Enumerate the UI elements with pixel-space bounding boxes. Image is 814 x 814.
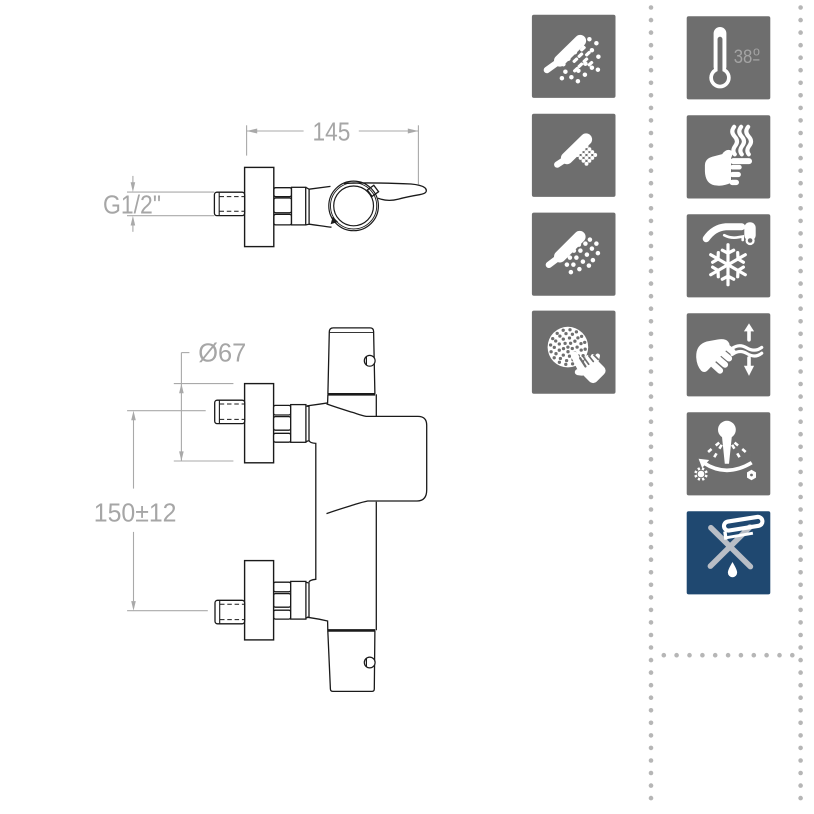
- svg-text:150±12: 150±12: [94, 499, 177, 527]
- svg-text:o: o: [753, 45, 760, 59]
- svg-text:145: 145: [313, 119, 351, 147]
- svg-text:Ø67: Ø67: [198, 340, 246, 368]
- svg-text:G1/2": G1/2": [103, 191, 161, 219]
- svg-text:38: 38: [734, 47, 753, 68]
